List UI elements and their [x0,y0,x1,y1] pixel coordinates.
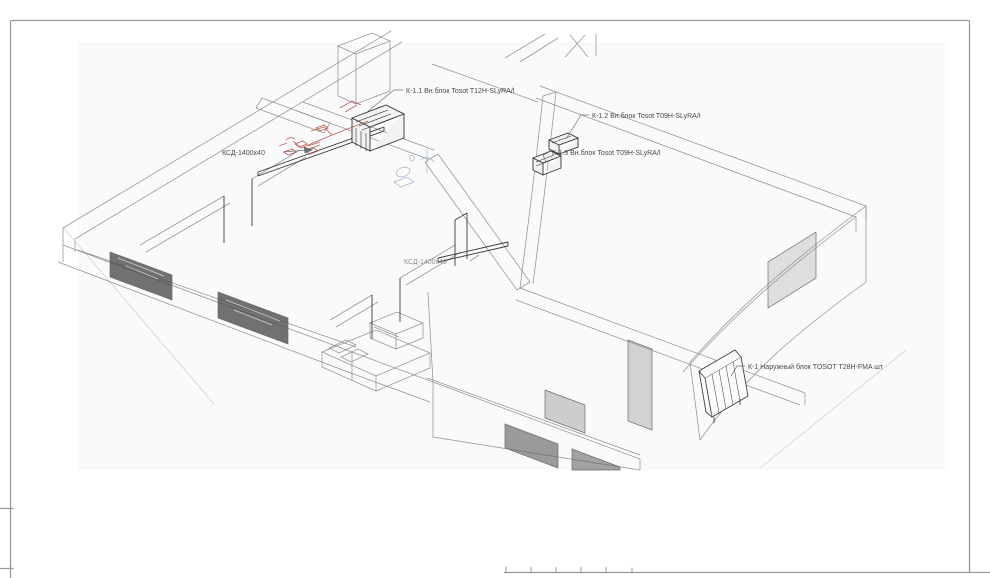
label-outdoor-unit-k1: К-1 Наружный блок TOSOT T28H-FMA шт [748,363,884,371]
label-indoor-unit-k12: К-1.2 Вн.блок Tosot T09H-SLyRA/I [592,112,701,120]
drawing-canvas [78,42,948,470]
label-indoor-unit-k11: К-1.1 Вн.блок Tosot T12H-SLyRA/I [406,87,515,95]
drawing-sheet: К-1.1 Вн.блок Tosot T12H-SLyRA/I К-1.2 В… [0,0,990,578]
axonometric-hvac-drawing: К-1.1 Вн.блок Tosot T12H-SLyRA/I К-1.2 В… [0,0,990,578]
label-indoor-unit-k13: К-1.3 Вн.блок Tosot T09H-SLyRA/I [552,149,661,157]
label-ksd-duct-1: КСД-1400х40 [222,150,265,157]
label-ksd-duct-2: КСД-1400х40 [404,259,447,266]
table-column-ticks [506,567,632,573]
